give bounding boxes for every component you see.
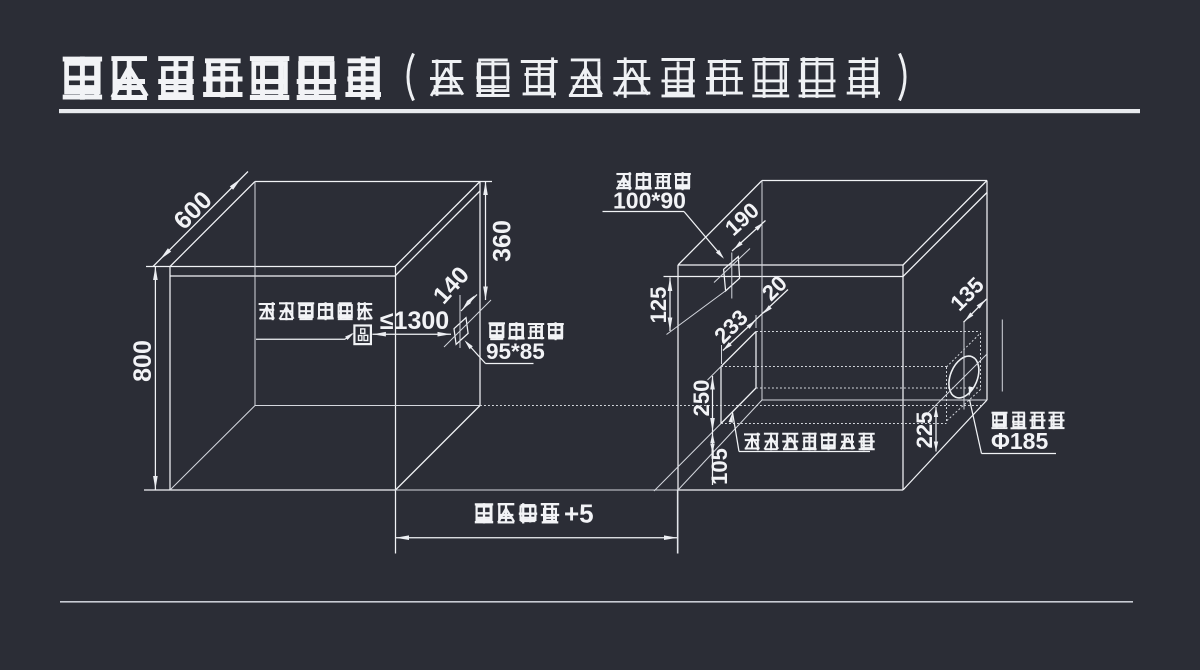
svg-text:100*90: 100*90 [613,188,686,214]
svg-text:125: 125 [646,287,671,324]
svg-text:250: 250 [689,380,714,417]
svg-text:190: 190 [720,197,764,240]
svg-text:135: 135 [945,272,989,316]
svg-text:105: 105 [707,448,732,485]
svg-text:≤1300: ≤1300 [380,307,449,335]
svg-text:+5: +5 [564,499,594,529]
svg-text:360: 360 [489,220,517,262]
svg-text:800: 800 [129,340,157,382]
svg-text:Φ185: Φ185 [991,428,1048,454]
svg-text:600: 600 [168,186,217,235]
svg-text:225: 225 [912,412,937,449]
svg-text:95*85: 95*85 [486,339,545,364]
